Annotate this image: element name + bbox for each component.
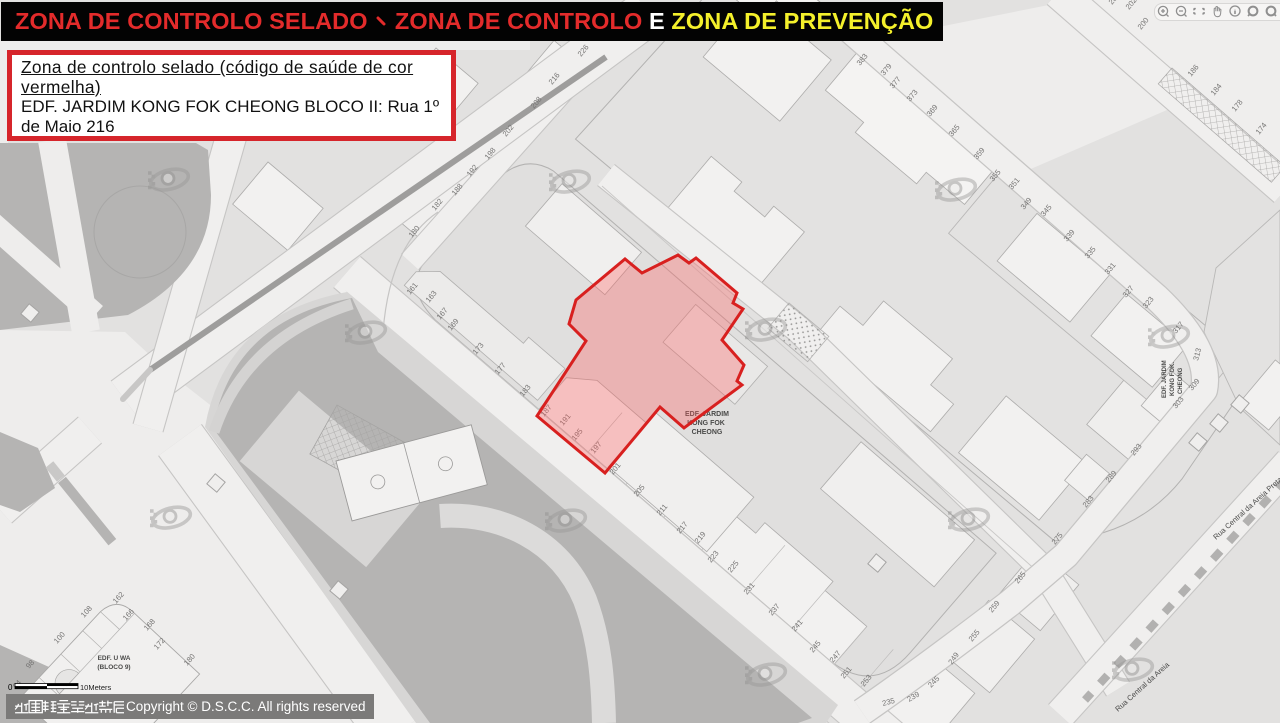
svg-text:0: 0 <box>8 683 13 692</box>
svg-text:10Meters: 10Meters <box>80 683 112 692</box>
svg-text:(BLOCO 9): (BLOCO 9) <box>97 664 130 671</box>
svg-text:EDF. U WA: EDF. U WA <box>98 655 131 662</box>
svg-text:CHEONG: CHEONG <box>692 429 723 436</box>
svg-text:CHEONG: CHEONG <box>1178 367 1184 394</box>
svg-text:KONG FOK.: KONG FOK. <box>1170 362 1176 396</box>
svg-text:EDF. JARDIM: EDF. JARDIM <box>1162 360 1168 398</box>
